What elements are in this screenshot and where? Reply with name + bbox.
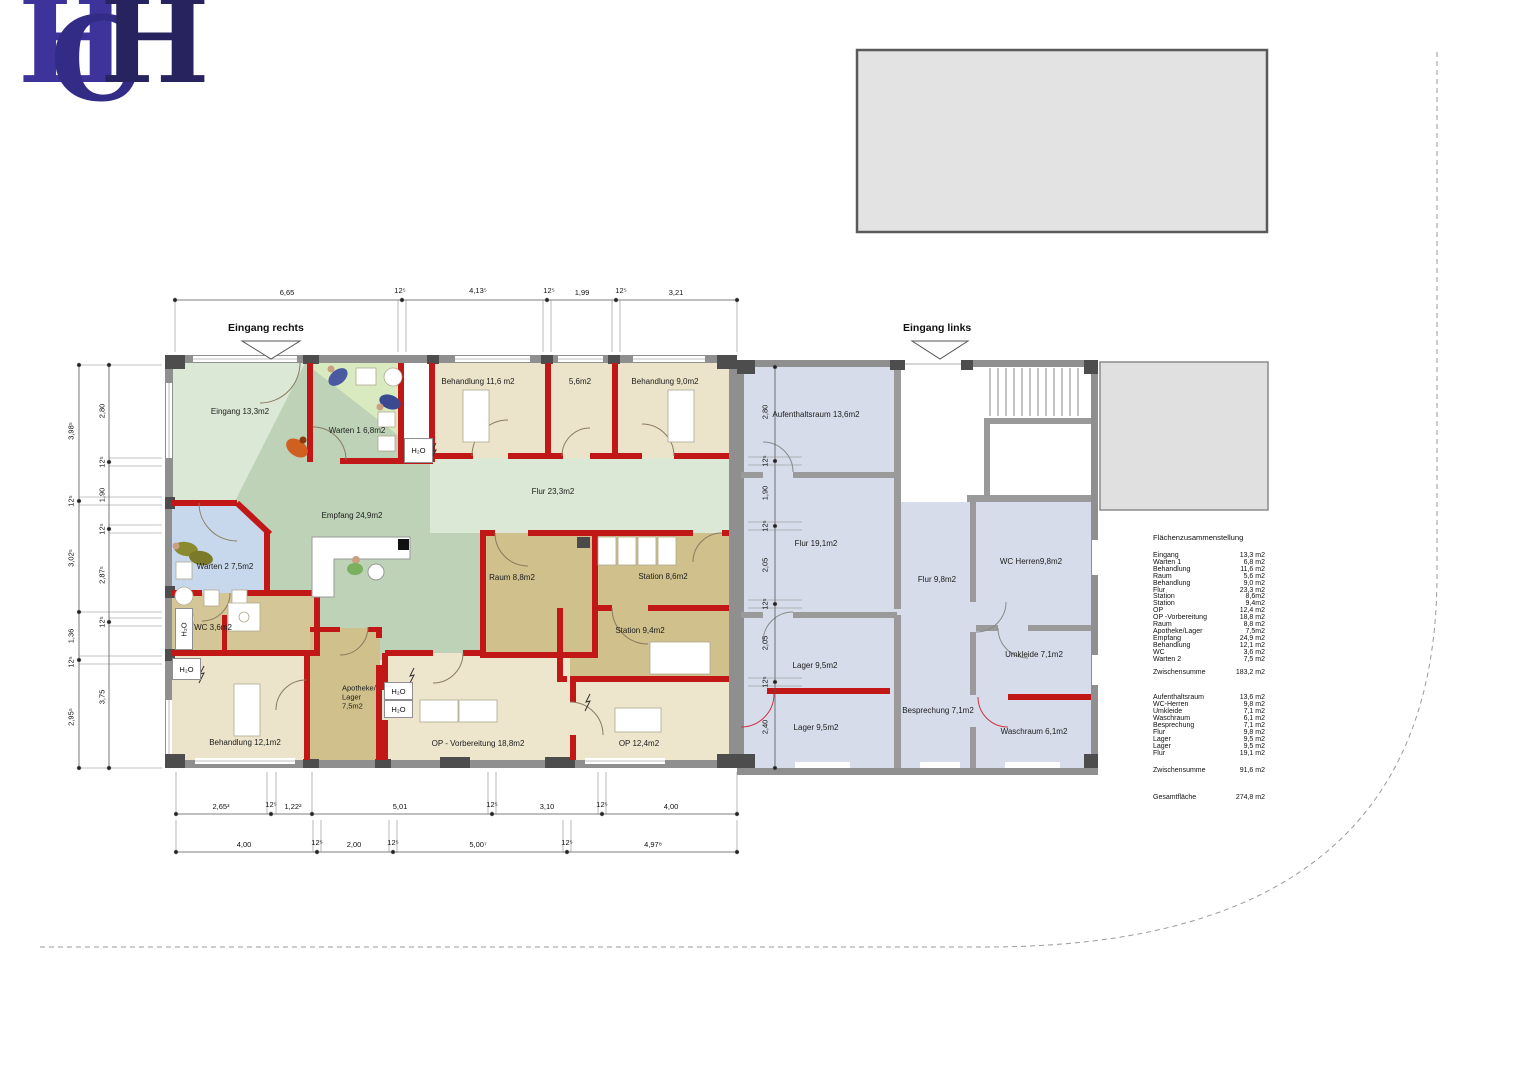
floor-plan-drawing — [0, 0, 1527, 1080]
dim-b2-0: 4,00 — [237, 840, 252, 849]
logo-letter-h2: H — [100, 0, 210, 100]
summary-row: Flur 19,1 m2 — [1153, 751, 1265, 758]
room-label-flur98: Flur 9,8m2 — [918, 575, 956, 585]
water-connection-label: H₂O — [175, 608, 193, 650]
room-label-flur191: Flur 19,1m2 — [795, 539, 838, 549]
room-label-behandlung121: Behandlung 12,1m2 — [209, 738, 281, 748]
dim-ri-5: 12⁵ — [761, 598, 770, 609]
dim-b1-1: 12⁵ — [265, 800, 276, 809]
dim-b2-4: 5,00⁷ — [469, 840, 486, 849]
room-label-eingang: Eingang 13,3m2 — [211, 407, 269, 417]
summary-row: Warten 2 7,5 m2 — [1153, 657, 1265, 664]
dim-ri-8: 2,40 — [761, 720, 770, 735]
company-logo: H C H — [6, 0, 406, 114]
dim-ri-1: 12⁵ — [761, 455, 770, 466]
room-label-aufenthalt: Aufenthaltsraum 13,6m2 — [772, 410, 859, 420]
water-connection-label: H₂O — [384, 682, 413, 700]
room-label-apotheke: Apotheke/ Lager 7,5m2 — [342, 684, 376, 711]
raum-dark-cabinet — [577, 537, 590, 548]
dim-b1-2: 1,22² — [284, 802, 301, 811]
room-label-waschraum: Waschraum 6,1m2 — [1001, 727, 1068, 737]
dim-ri-3: 12⁵ — [761, 520, 770, 531]
room-label-empfang: Empfang 24,9m2 — [322, 511, 383, 521]
summary-total: Gesamtfläche 274,8 m2 — [1153, 795, 1265, 802]
dim-b2-3: 12⁵ — [387, 838, 398, 847]
room-label-behandlung116: Behandlung 11,6 m2 — [441, 377, 514, 387]
dim-li-1: 12⁵ — [98, 456, 107, 467]
neighbour-building-right — [1100, 362, 1268, 510]
dim-ri-7: 12⁵ — [761, 676, 770, 687]
dim-b1-3: 5,01 — [393, 802, 408, 811]
dim-b1-0: 2,65³ — [212, 802, 229, 811]
dim-b1-6: 12⁵ — [596, 800, 607, 809]
dim-li-3: 12⁵ — [98, 523, 107, 534]
room-label-flur233: Flur 23,3m2 — [532, 487, 575, 497]
room-label-lager2: Lager 9,5m2 — [794, 723, 839, 733]
dim-top-5: 12⁵ — [615, 286, 626, 295]
dim-top-1: 12⁵ — [394, 286, 405, 295]
dim-b2-2: 2,00 — [347, 840, 362, 849]
water-connection-label: H₂O — [172, 658, 201, 680]
dim-lo-3: 1,36 — [67, 629, 76, 644]
room-label-station94: Station 9,4m2 — [615, 626, 664, 636]
dim-li-6: 3,75 — [98, 690, 107, 705]
dim-ri-2: 1,90 — [761, 486, 770, 501]
entrance-left-arrow — [912, 341, 968, 359]
summary-title: Flächenzusammenstellung — [1153, 533, 1265, 542]
summary-subtotal-2: Zwischensumme 91,6 m2 — [1153, 768, 1265, 775]
dim-top-3: 12⁵ — [543, 286, 554, 295]
dim-ri-4: 2,05 — [761, 558, 770, 573]
dim-b1-4: 12⁵ — [486, 800, 497, 809]
dim-top-0: 6,65 — [280, 288, 295, 297]
dim-top-4: 1,99 — [575, 288, 590, 297]
dim-li-4: 2,87⁵ — [98, 566, 107, 584]
room-label-behandlung90: Behandlung 9,0m2 — [631, 377, 698, 387]
room-label-wcherren: WC Herren9,8m2 — [1000, 557, 1062, 567]
neighbour-building-top — [857, 50, 1267, 232]
dim-li-0: 2,80 — [98, 404, 107, 419]
room-label-umkleide: Umkleide 7,1m2 — [1005, 650, 1063, 660]
room-label-opvorb: OP - Vorbereitung 18,8m2 — [432, 739, 525, 749]
dim-b1-7: 4,00 — [664, 802, 679, 811]
dim-lo-1: 12⁵ — [67, 495, 76, 506]
summary-subtotal-1: Zwischensumme 183,2 m2 — [1153, 670, 1265, 677]
dim-li-2: 1,90 — [98, 488, 107, 503]
dim-b2-6: 4,97⁸ — [644, 840, 662, 849]
floor-plan-canvas: H C H Eingang rechts Eingang links Einga… — [0, 0, 1527, 1080]
summary-section-1: Eingang 13,3 m2 Warten 1 6,8 m2 Behandlu… — [1153, 553, 1265, 664]
dim-b2-1: 12⁵ — [311, 838, 322, 847]
room-label-warten2: Warten 2 7,5m2 — [197, 562, 254, 572]
room-label-wc36: WC 3,6m2 — [194, 623, 232, 633]
dim-b1-5: 3,10 — [540, 802, 555, 811]
dim-top-2: 4,13⁵ — [469, 286, 487, 295]
dim-li-5: 12⁵ — [98, 616, 107, 627]
entrance-left-label: Eingang links — [903, 322, 971, 334]
water-connection-label: H₂O — [384, 700, 413, 718]
dim-top-6: 3,21 — [669, 288, 684, 297]
dim-lo-0: 3,98⁵ — [67, 422, 76, 440]
room-label-station86: Station 8,6m2 — [638, 572, 687, 582]
room-label-raum88: Raum 8,8m2 — [489, 573, 535, 583]
dim-lo-5: 2,95⁵ — [67, 708, 76, 726]
water-connection-label: H₂O — [404, 438, 433, 463]
dim-lo-2: 3,02⁵ — [67, 549, 76, 567]
room-label-besprechung: Besprechung 7,1m2 — [902, 706, 974, 716]
dim-b2-5: 12⁵ — [561, 838, 572, 847]
dim-lo-4: 12⁵ — [67, 656, 76, 667]
dim-ri-0: 2,80 — [761, 405, 770, 420]
entrance-right-label: Eingang rechts — [228, 322, 304, 334]
summary-section-2: Aufenthaltsraum 13,6 m2 WC-Herren 9,8 m2… — [1153, 695, 1265, 757]
room-label-warten1: Warten 1 6,8m2 — [329, 426, 386, 436]
area-summary-table: Flächenzusammenstellung Eingang 13,3 m2 … — [1153, 533, 1265, 802]
room-label-raum56: 5,6m2 — [569, 377, 591, 387]
room-label-lager1: Lager 9,5m2 — [793, 661, 838, 671]
dim-ri-6: 2,05 — [761, 636, 770, 651]
room-label-op124: OP 12,4m2 — [619, 739, 659, 749]
